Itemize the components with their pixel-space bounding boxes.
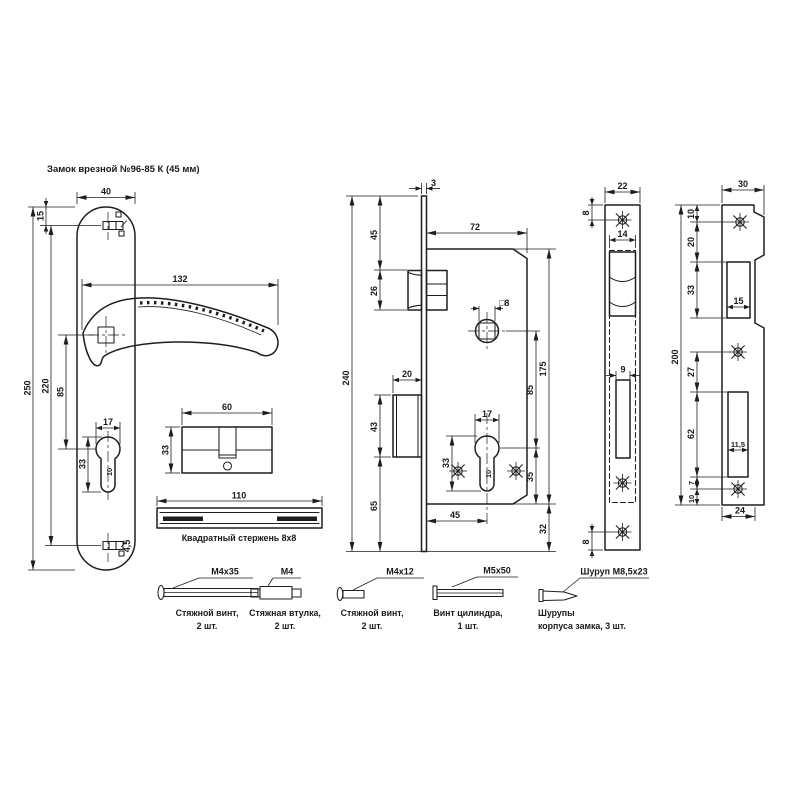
dim-top-to-screw: 10 xyxy=(686,209,696,219)
dim-latch-opening-height: 33 xyxy=(686,285,696,295)
square-rod-view: 110 Квадратный стержень 8х8 xyxy=(157,491,322,544)
square-rod-dimensions: 110 xyxy=(157,491,322,507)
dim-screw-to-top: 8 xyxy=(581,210,591,215)
latch-bolt xyxy=(408,271,447,311)
fastener-m5x50: М5х50 Винт цилиндра, 1 шт. xyxy=(433,566,518,632)
dim-lock-keyhole-slot: 10 xyxy=(484,470,493,478)
dim-body-height: 175 xyxy=(538,361,548,376)
fastener-caption-line1: Стяжной винт, xyxy=(341,608,404,618)
dim-screw-to-bottom-strike: 10 xyxy=(687,495,696,503)
dim-keyhole-slot-width: 10 xyxy=(105,468,114,476)
cylinder-dimensions: 60 33 xyxy=(161,402,273,473)
dim-spindle-square: □8 xyxy=(499,298,509,308)
dim-lock-keyhole-height: 33 xyxy=(441,458,451,468)
dim-bolt-opening-width: 11,5 xyxy=(731,440,745,449)
dim-handle-length: 132 xyxy=(172,274,187,284)
fastener-caption-line1: Стяжная втулка, xyxy=(249,608,321,618)
faceplate-screw-bottom xyxy=(614,523,632,541)
dim-bolt-height: 43 xyxy=(369,422,379,432)
drawing-canvas: Замок врезной №96-85 К (45 мм) xyxy=(0,0,800,800)
rod-knurl-left xyxy=(163,517,203,522)
drawing-title: Замок врезной №96-85 К (45 мм) xyxy=(47,164,200,175)
faceplate-hidden-body xyxy=(610,251,636,503)
fastener-m4x12: М4х12 Стяжной винт, 2 шт. xyxy=(337,567,424,632)
lock-screw-hole-right xyxy=(507,462,525,480)
strike-bolt-opening xyxy=(728,392,748,477)
fastener-caption-line1: Стяжной винт, xyxy=(176,608,239,618)
fastener-caption-line2: 2 шт. xyxy=(197,621,218,631)
faceplate-bolt-slot xyxy=(616,380,630,458)
dim-handle-to-keyhole: 85 xyxy=(56,387,66,397)
dim-keyhole-to-bottom: 35 xyxy=(525,472,535,482)
wood-screw-icon xyxy=(539,590,577,602)
lock-faceplate-bar xyxy=(422,196,427,552)
dim-bolt-throw: 20 xyxy=(402,369,412,379)
top-screw-slot xyxy=(103,212,127,240)
dim-bolt-opening-height: 62 xyxy=(686,429,696,439)
dim-body-width: 72 xyxy=(470,222,480,232)
dim-flat-width: 24 xyxy=(735,506,745,516)
dim-lock-keyhole-width: 17 xyxy=(482,409,492,419)
cylinder-pin-hole xyxy=(224,462,232,470)
fastener-m4x35: М4х35 Стяжной винт, 2 шт. xyxy=(158,567,258,632)
fastener-spec: М4х12 xyxy=(386,567,414,577)
dim-cylinder-length: 60 xyxy=(222,402,232,412)
dim-faceplate-width: 22 xyxy=(617,181,627,191)
handle-plate-outline xyxy=(77,207,135,570)
deadbolt xyxy=(393,395,422,457)
lever-handle-outline xyxy=(83,298,278,366)
fastener-caption-line2: корпуса замка, 3 шт. xyxy=(538,621,626,631)
dim-top-to-latch: 45 xyxy=(369,230,379,240)
faceplate-dimensions: 22 8 14 9 8 xyxy=(581,181,640,558)
dim-cylinder-height: 33 xyxy=(161,445,171,455)
strike-latch-opening xyxy=(727,262,750,318)
dim-inner-width: 14 xyxy=(617,229,627,239)
fastener-caption-line1: Шурупы xyxy=(538,608,575,618)
fastener-spec: М4х35 xyxy=(211,567,239,577)
fastener-m4-sleeve: М4 Стяжная втулка, 2 шт. xyxy=(249,567,321,632)
dim-screw-to-bolt: 27 xyxy=(686,367,696,377)
dim-body-to-faceplate-end: 32 xyxy=(538,524,548,534)
dim-spindle-to-keyhole: 85 xyxy=(525,385,535,395)
dim-plate-height: 250 xyxy=(23,380,33,395)
screw-icon xyxy=(337,588,364,601)
strike-screw-mid xyxy=(729,343,747,361)
spindle-hub xyxy=(468,312,506,350)
handle-grip-line xyxy=(138,307,261,335)
dim-strike-height: 200 xyxy=(670,349,680,364)
strike-plate-view: 30 200 10 20 33 27 62 7 xyxy=(670,179,764,521)
fastener-caption-line2: 1 шт. xyxy=(458,621,479,631)
fastener-spec: М4 xyxy=(281,567,294,577)
dim-keyhole-width: 17 xyxy=(103,417,113,427)
faceplate-view: 22 8 14 9 8 xyxy=(581,181,640,558)
fastener-wood-screw: Шуруп М8,5х23 Шурупы корпуса замка, 3 шт… xyxy=(538,567,649,632)
technical-drawing-page: Замок врезной №96-85 К (45 мм) xyxy=(0,0,800,800)
strike-screw-top xyxy=(731,213,749,231)
dim-slot-hole: 4,5 xyxy=(122,540,132,553)
faceplate-screw-top xyxy=(614,211,632,229)
fastener-caption-line2: 2 шт. xyxy=(275,621,296,631)
dim-bolt-to-screw: 7 xyxy=(687,481,696,485)
lock-body-view: 3 240 45 26 20 43 65 xyxy=(341,178,556,552)
strike-screw-bottom xyxy=(729,480,747,498)
rod-knurl-right xyxy=(277,517,317,522)
dim-bolt-to-bottom: 65 xyxy=(369,501,379,511)
dim-latch-height: 26 xyxy=(369,286,379,296)
dim-top-edge-to-slot: 15 xyxy=(36,211,46,221)
fastener-spec: Шуруп М8,5х23 xyxy=(580,567,647,577)
cylinder-keyway xyxy=(219,427,236,458)
dim-rod-length: 110 xyxy=(232,491,247,501)
faceplate-screw-mid xyxy=(614,474,632,492)
lock-body-dimensions: 3 240 45 26 20 43 65 xyxy=(341,178,556,552)
dim-faceplate-thickness: 3 xyxy=(431,178,436,188)
fastener-spec: М5х50 xyxy=(483,566,511,576)
dim-backset: 45 xyxy=(450,510,460,520)
dim-bolt-slot-width: 9 xyxy=(620,365,625,375)
dim-latch-opening-width: 15 xyxy=(733,296,743,306)
fastener-caption-line2: 2 шт. xyxy=(362,621,383,631)
dim-plate-width: 40 xyxy=(101,187,111,197)
dim-strike-width: 30 xyxy=(738,179,748,189)
dim-screw-to-latch: 20 xyxy=(686,237,696,247)
dim-slot-span: 220 xyxy=(41,378,51,393)
strike-plate-dimensions: 30 200 10 20 33 27 62 7 xyxy=(670,179,764,521)
dim-screw-to-bottom: 8 xyxy=(581,539,591,544)
dim-faceplate-height: 240 xyxy=(341,370,351,385)
dim-keyhole-height: 33 xyxy=(78,459,88,469)
cylinder-view: 60 33 xyxy=(161,402,273,473)
square-rod-caption: Квадратный стержень 8х8 xyxy=(182,533,297,543)
cylinder-screw-icon xyxy=(433,586,503,600)
fastener-caption-line1: Винт цилиндра, xyxy=(433,608,502,618)
